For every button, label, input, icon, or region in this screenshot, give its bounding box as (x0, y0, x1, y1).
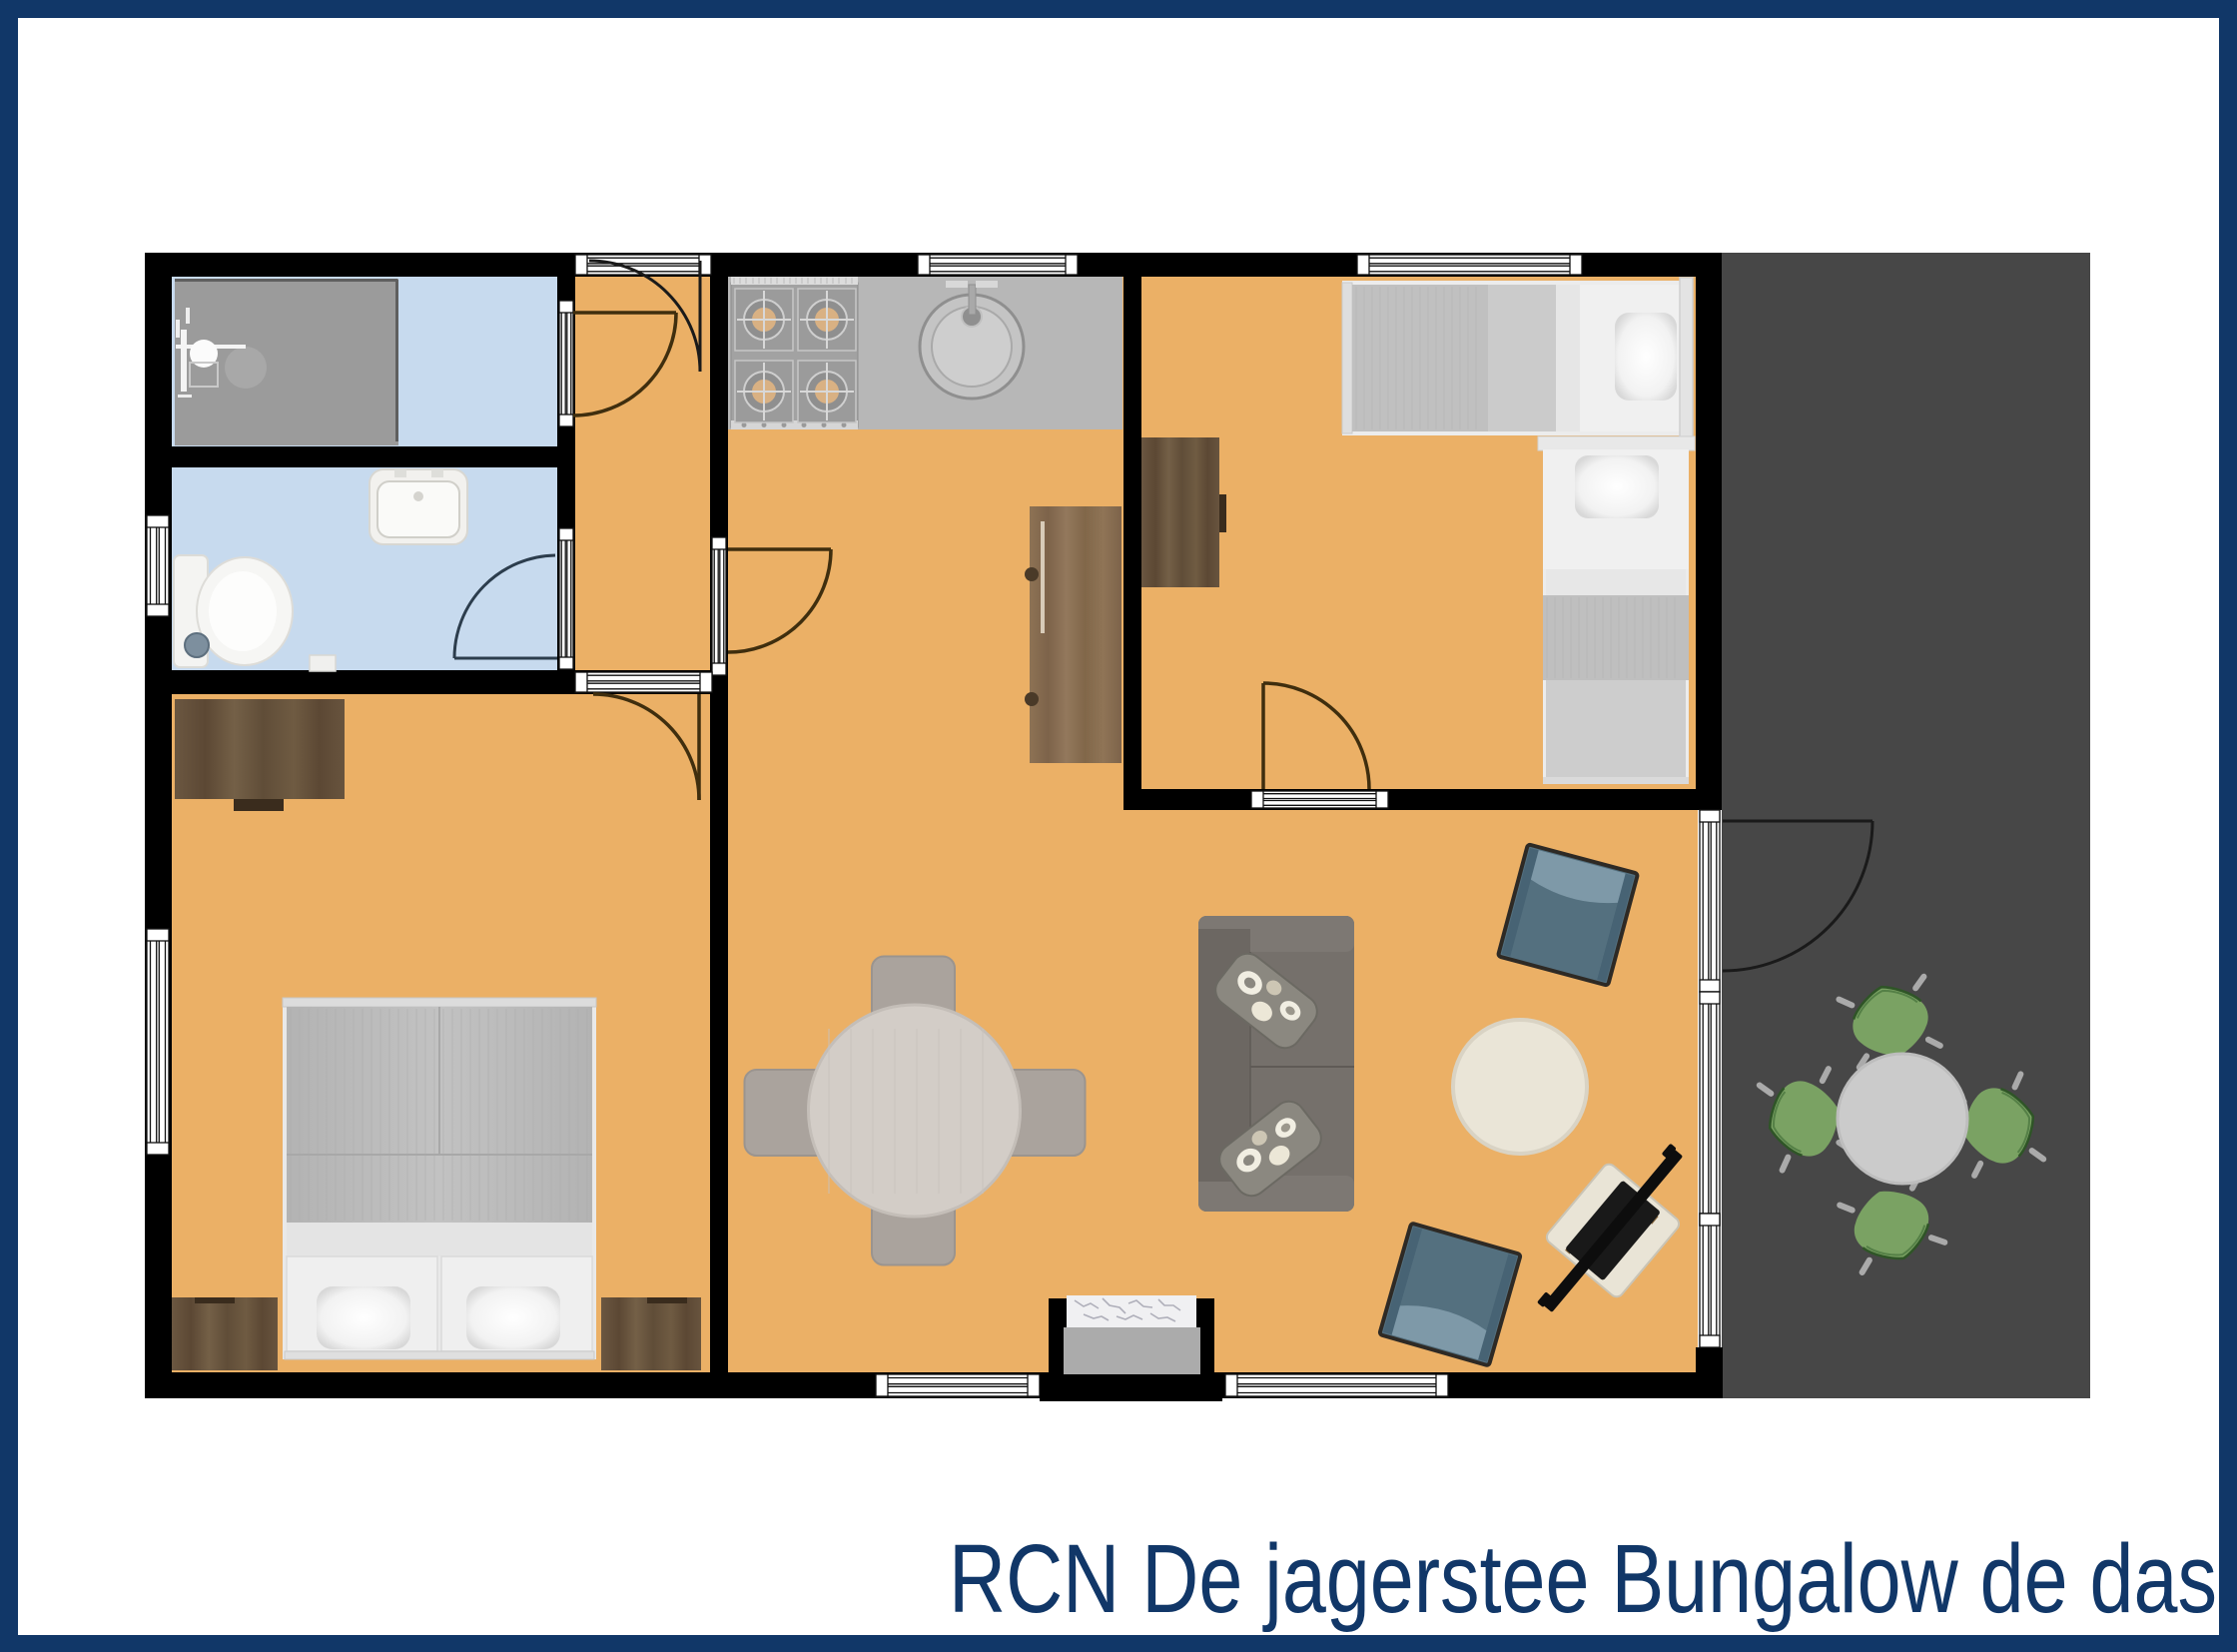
svg-text:RCN De jagerstee Bungalow de d: RCN De jagerstee Bungalow de das (949, 1524, 2217, 1633)
